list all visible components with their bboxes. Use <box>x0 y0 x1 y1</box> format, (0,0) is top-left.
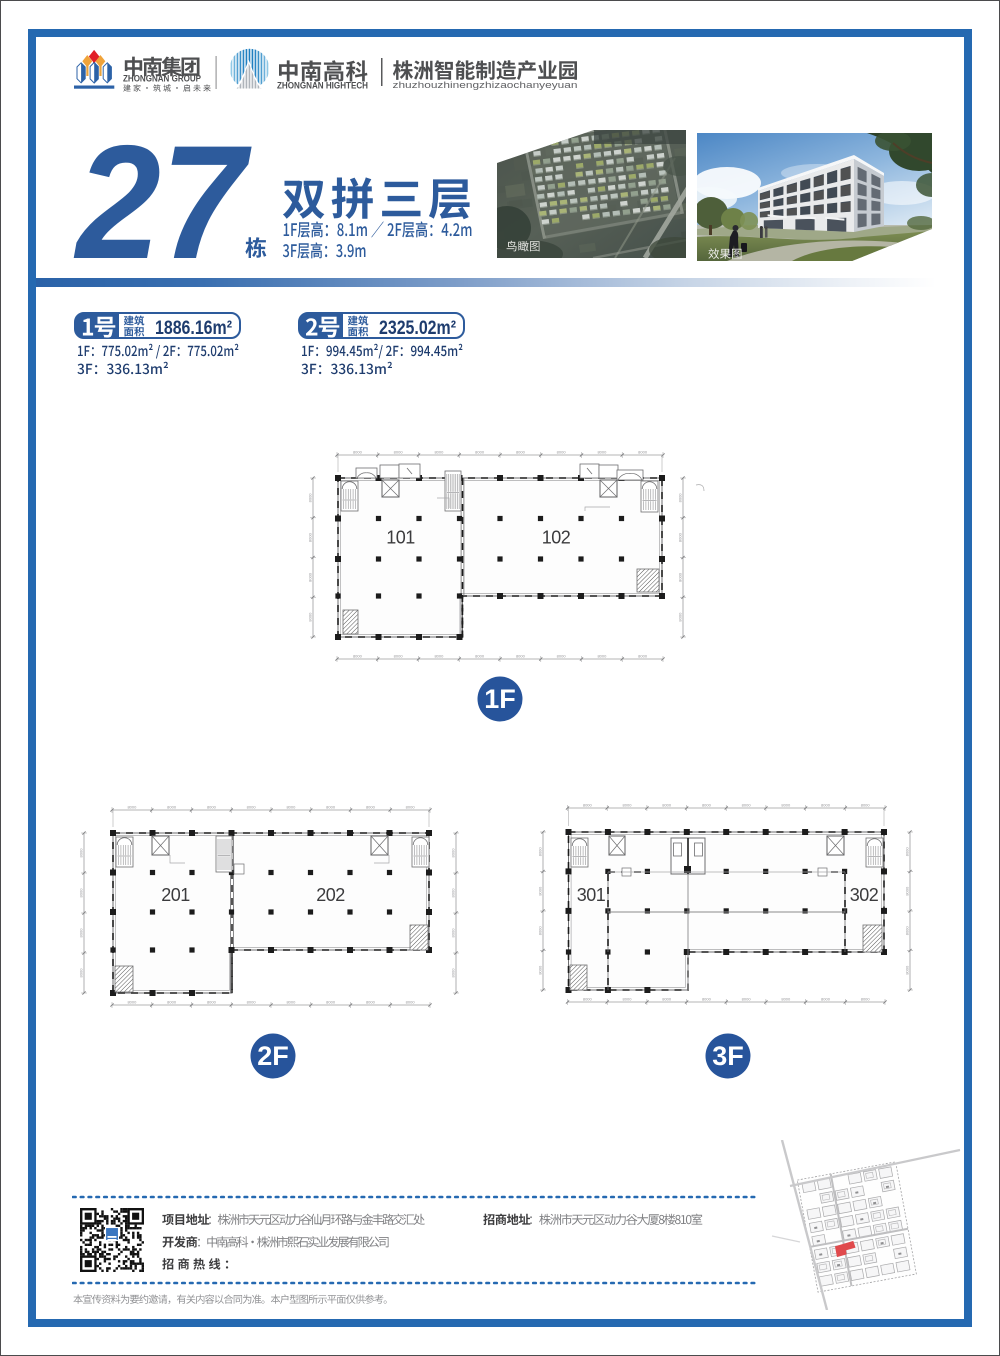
svg-text:8000: 8000 <box>904 965 909 975</box>
svg-text:8000: 8000 <box>167 999 177 1004</box>
svg-text:8000: 8000 <box>861 802 871 807</box>
svg-text:8000: 8000 <box>127 999 137 1004</box>
svg-text:3F: 3F <box>712 1041 744 1071</box>
svg-text:8000: 8000 <box>247 804 257 809</box>
svg-text:8000: 8000 <box>821 802 831 807</box>
svg-text:8000: 8000 <box>167 804 177 809</box>
svg-text:8000: 8000 <box>127 804 137 809</box>
svg-text:8000: 8000 <box>537 965 542 975</box>
svg-text:8000: 8000 <box>450 888 455 898</box>
svg-text:8000: 8000 <box>677 572 682 582</box>
svg-text:8000: 8000 <box>702 802 712 807</box>
svg-text:8000: 8000 <box>677 612 682 622</box>
svg-text:302: 302 <box>850 885 879 905</box>
svg-text:2F: 2F <box>257 1041 289 1071</box>
svg-text:8000: 8000 <box>904 926 909 936</box>
svg-text:8000: 8000 <box>78 848 83 858</box>
svg-text:8000: 8000 <box>904 847 909 857</box>
svg-text:8000: 8000 <box>638 449 648 454</box>
svg-text:301: 301 <box>577 885 606 905</box>
svg-text:8000: 8000 <box>406 999 416 1004</box>
svg-text:8000: 8000 <box>353 653 363 658</box>
svg-text:8000: 8000 <box>366 999 376 1004</box>
svg-text:8000: 8000 <box>434 653 444 658</box>
svg-text:8000: 8000 <box>247 999 257 1004</box>
svg-text:zhuzhouzhinengzhizaochanyeyuan: zhuzhouzhinengzhizaochanyeyuan <box>393 80 578 90</box>
svg-text:8000: 8000 <box>78 928 83 938</box>
svg-text:8000: 8000 <box>326 999 336 1004</box>
svg-text:8000: 8000 <box>623 802 633 807</box>
svg-text:8000: 8000 <box>286 804 296 809</box>
svg-text:8000: 8000 <box>475 653 485 658</box>
svg-text:8000: 8000 <box>286 999 296 1004</box>
svg-text:8000: 8000 <box>597 449 607 454</box>
svg-text:8000: 8000 <box>366 804 376 809</box>
svg-text:8000: 8000 <box>861 996 871 1001</box>
svg-text:8000: 8000 <box>557 449 567 454</box>
svg-text:8000: 8000 <box>638 653 648 658</box>
svg-text:8000: 8000 <box>662 996 672 1001</box>
svg-text:8000: 8000 <box>742 802 752 807</box>
svg-text:ZHONGNAN GROUP: ZHONGNAN GROUP <box>123 74 201 84</box>
svg-text:8000: 8000 <box>353 449 363 454</box>
svg-text:8000: 8000 <box>207 999 217 1004</box>
svg-text:8000: 8000 <box>516 653 526 658</box>
svg-text:8000: 8000 <box>662 802 672 807</box>
svg-text:8000: 8000 <box>597 653 607 658</box>
svg-text:8000: 8000 <box>537 926 542 936</box>
svg-text:8000: 8000 <box>781 996 791 1001</box>
svg-text:8000: 8000 <box>307 612 312 622</box>
svg-text:8000: 8000 <box>702 996 712 1001</box>
svg-text:8000: 8000 <box>450 848 455 858</box>
svg-text:1886.16m²: 1886.16m² <box>155 317 232 339</box>
svg-text:8000: 8000 <box>307 493 312 503</box>
svg-text:27: 27 <box>73 120 252 280</box>
svg-text:8000: 8000 <box>434 449 444 454</box>
svg-text:8000: 8000 <box>450 928 455 938</box>
svg-text:8000: 8000 <box>406 804 416 809</box>
svg-text:8000: 8000 <box>326 804 336 809</box>
svg-text:8000: 8000 <box>475 449 485 454</box>
svg-text:8000: 8000 <box>623 996 633 1001</box>
svg-text:8000: 8000 <box>742 996 752 1001</box>
svg-text:8000: 8000 <box>516 449 526 454</box>
svg-text:8000: 8000 <box>821 996 831 1001</box>
svg-text:201: 201 <box>161 885 190 905</box>
svg-text:8000: 8000 <box>583 802 593 807</box>
svg-text:8000: 8000 <box>307 532 312 542</box>
svg-text:8000: 8000 <box>78 968 83 978</box>
svg-text:8000: 8000 <box>677 532 682 542</box>
svg-text:8000: 8000 <box>78 888 83 898</box>
svg-text:101: 101 <box>386 528 415 548</box>
svg-text:8000: 8000 <box>557 653 567 658</box>
svg-text:8000: 8000 <box>904 886 909 896</box>
svg-text:8000: 8000 <box>781 802 791 807</box>
svg-text:2325.02m²: 2325.02m² <box>379 317 456 339</box>
svg-text:8000: 8000 <box>450 968 455 978</box>
svg-text:8000: 8000 <box>394 653 404 658</box>
svg-text:8000: 8000 <box>537 847 542 857</box>
svg-text:8000: 8000 <box>307 572 312 582</box>
svg-text:8000: 8000 <box>394 449 404 454</box>
svg-text:8000: 8000 <box>677 493 682 503</box>
svg-text:1F: 1F <box>484 684 516 714</box>
svg-text:ZHONGNAN HIGHTECH: ZHONGNAN HIGHTECH <box>277 81 368 91</box>
svg-text:8000: 8000 <box>583 996 593 1001</box>
svg-text:202: 202 <box>316 885 345 905</box>
svg-text:102: 102 <box>542 528 571 548</box>
svg-text:8000: 8000 <box>537 886 542 896</box>
svg-text:8000: 8000 <box>207 804 217 809</box>
